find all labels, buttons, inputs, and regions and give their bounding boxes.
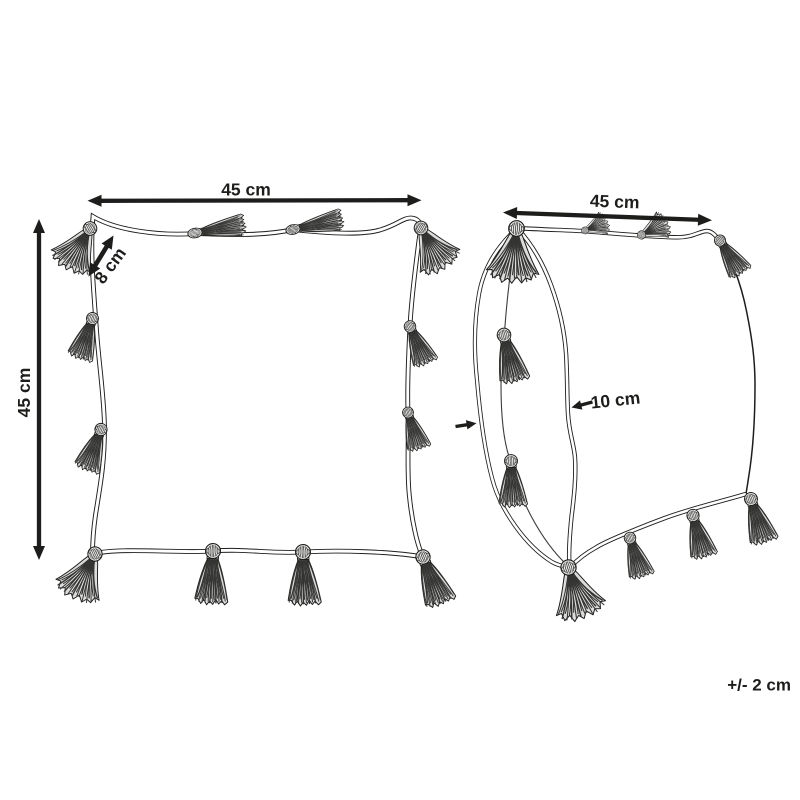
svg-text:+/- 2 cm: +/- 2 cm	[727, 676, 791, 695]
svg-text:45 cm: 45 cm	[14, 368, 34, 418]
svg-text:45 cm: 45 cm	[221, 180, 271, 200]
svg-text:45 cm: 45 cm	[590, 191, 640, 213]
